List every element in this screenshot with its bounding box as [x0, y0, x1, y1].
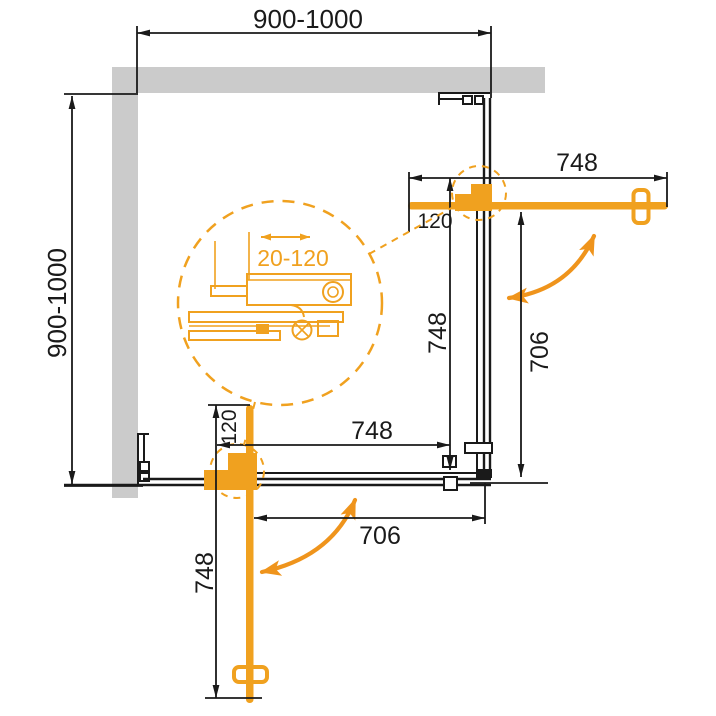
- dim-label-bottom-offset: 120: [218, 409, 241, 444]
- dim-label-right-door: 748: [556, 149, 598, 177]
- dim-label-right-offset: 120: [417, 210, 452, 233]
- bottom-left-door: [204, 405, 355, 703]
- roller-wheel: [323, 282, 343, 302]
- profile-housing: [247, 274, 351, 305]
- door-swing-arrow: [262, 500, 355, 572]
- roller-wheel-hub: [328, 287, 338, 297]
- bracket-notch: [463, 96, 472, 104]
- top-wall: [112, 67, 545, 93]
- left-wall: [112, 67, 138, 498]
- bracket-notch: [140, 462, 149, 471]
- dim-label-right-panel: 748: [424, 312, 452, 354]
- dim-label-profile-adjustment: 20-120: [257, 245, 329, 271]
- detail-view: 20-120: [178, 201, 455, 445]
- dim-label-left-depth: 900-1000: [42, 248, 72, 358]
- corner-block: [476, 469, 492, 478]
- clamp-block: [256, 324, 269, 334]
- bracket-notch: [475, 96, 483, 104]
- dim-label-top-width: 900-1000: [253, 4, 363, 34]
- dim-label-bottom-opening: 706: [359, 522, 401, 550]
- glass-clamp: [465, 443, 492, 453]
- door-glass-bar: [408, 202, 668, 210]
- technical-drawing-page: 900-1000 900-1000: [0, 0, 716, 716]
- dimensions-bottom-left: 120 748 748 706: [191, 405, 485, 698]
- wall-profile-mechanism: [189, 274, 351, 340]
- dim-label-bottom-door: 748: [191, 552, 219, 594]
- glass-clamp: [444, 477, 457, 490]
- end-block: [318, 321, 338, 336]
- dim-label-bottom-panel: 748: [351, 417, 393, 445]
- dimensions-top-right: 748 120 748 706: [409, 149, 667, 483]
- rail-section: [211, 286, 247, 296]
- dim-label-right-opening: 706: [526, 331, 554, 373]
- right-fixed-panel: [438, 93, 490, 471]
- shower-enclosure-diagram: 900-1000 900-1000: [0, 0, 716, 716]
